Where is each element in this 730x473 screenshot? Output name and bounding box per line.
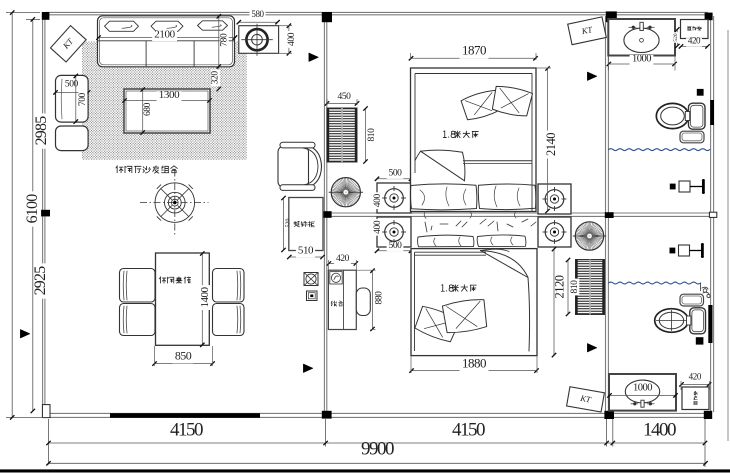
- svg-text:2140: 2140: [544, 133, 558, 156]
- svg-text:9900: 9900: [361, 438, 394, 459]
- svg-text:420: 420: [336, 254, 350, 264]
- svg-text:4150: 4150: [452, 419, 485, 440]
- svg-text:2120: 2120: [552, 275, 566, 298]
- svg-text:1400: 1400: [643, 419, 676, 440]
- svg-text:400: 400: [373, 220, 383, 234]
- svg-text:400: 400: [287, 32, 297, 46]
- svg-text:1000: 1000: [633, 383, 652, 394]
- svg-text:780: 780: [219, 33, 229, 47]
- svg-text:500: 500: [388, 241, 402, 251]
- svg-text:450: 450: [337, 92, 351, 102]
- svg-text:510: 510: [298, 245, 314, 257]
- svg-text:500: 500: [65, 80, 79, 90]
- svg-text:1000: 1000: [632, 53, 651, 64]
- svg-text:1400: 1400: [199, 287, 211, 308]
- svg-text:580: 580: [251, 9, 264, 19]
- svg-text:520: 520: [285, 219, 291, 228]
- svg-text:420: 420: [689, 371, 702, 381]
- svg-text:810: 810: [367, 128, 377, 142]
- svg-text:1880: 1880: [462, 355, 486, 370]
- svg-text:1300: 1300: [159, 89, 180, 101]
- svg-text:850: 850: [175, 349, 192, 363]
- svg-text:810: 810: [570, 280, 580, 294]
- svg-text:680: 680: [143, 102, 153, 116]
- svg-text:4150: 4150: [170, 419, 203, 440]
- svg-text:6100: 6100: [24, 194, 41, 224]
- svg-text:500: 500: [388, 169, 402, 179]
- svg-text:2925: 2925: [32, 266, 49, 296]
- svg-text:320: 320: [211, 71, 221, 85]
- svg-text:520: 520: [673, 33, 679, 42]
- svg-text:2985: 2985: [33, 116, 50, 146]
- svg-text:700: 700: [78, 92, 88, 106]
- svg-text:420: 420: [688, 35, 701, 45]
- svg-text:1870: 1870: [462, 42, 486, 57]
- svg-text:880: 880: [375, 291, 385, 305]
- svg-text:400: 400: [373, 194, 383, 208]
- svg-text:2100: 2100: [154, 29, 175, 41]
